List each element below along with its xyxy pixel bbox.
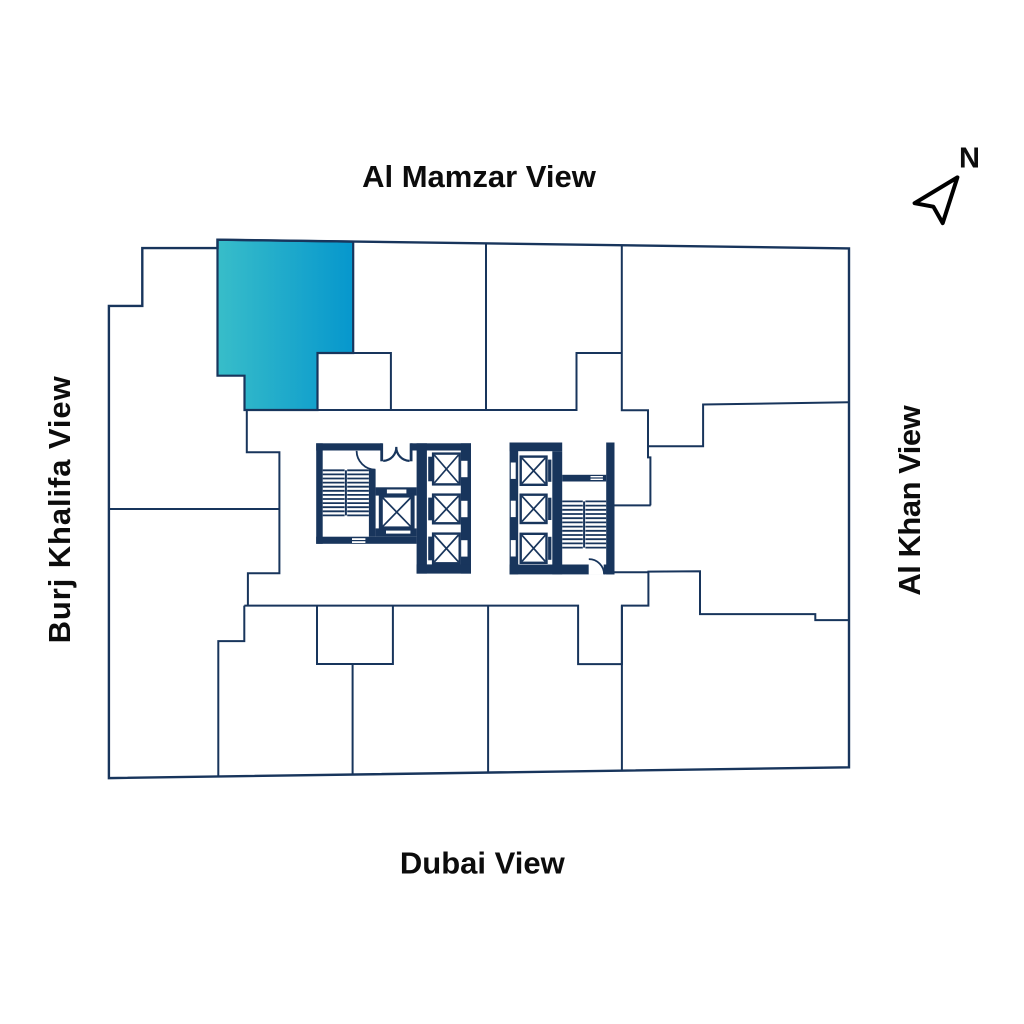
svg-text:Al Khan View: Al Khan View [892, 404, 927, 595]
svg-text:Dubai View: Dubai View [400, 846, 566, 881]
svg-text:Al Mamzar View: Al Mamzar View [362, 159, 597, 194]
svg-text:Burj Khalifa View: Burj Khalifa View [42, 375, 77, 643]
svg-text:N: N [959, 143, 980, 175]
